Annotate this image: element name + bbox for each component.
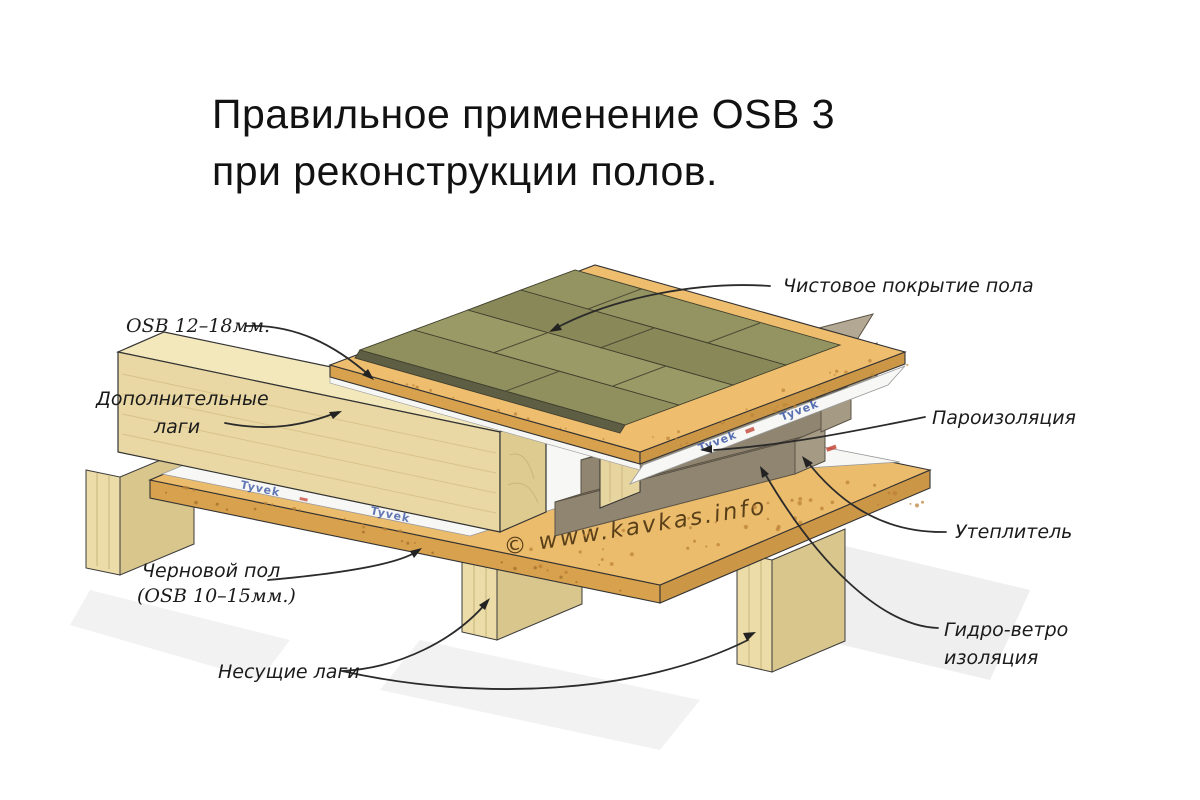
floor-diagram-page: Tyvek Tyvek Tyvek Tyvek Tyvek © www.kavk… [0,0,1200,800]
label-subfloor-spec: (OSB 10–15мм.) [137,583,296,611]
leader-subfloor [268,552,416,580]
label-additional-joists: Дополнительные лаги [96,386,258,441]
title-line-1: Правильное применение OSB 3 [212,86,835,143]
label-insulation: Утеплитель [955,519,1072,547]
label-subfloor: Черновой пол [142,558,280,586]
label-osb-top: OSB 12–18мм. [126,313,270,341]
bearing-joist-left [86,446,194,575]
title-line-2: при реконструкции полов. [212,143,835,200]
label-bearing-joists: Несущие лаги [218,659,360,687]
page-title: Правильное применение OSB 3 при реконстр… [212,86,835,199]
label-finish-floor: Чистовое покрытие пола [783,273,1034,301]
label-vapor-barrier: Пароизоляция [932,405,1076,433]
label-hydro-wind: Гидро-ветро изоляция [944,617,1068,672]
